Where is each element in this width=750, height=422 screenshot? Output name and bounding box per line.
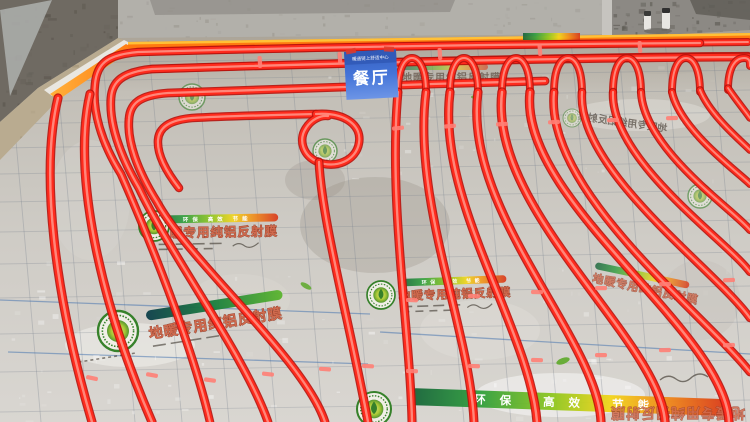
pipe-clip — [437, 48, 442, 60]
pipe-clip — [537, 44, 542, 56]
pipe-clip — [659, 348, 671, 352]
pipe-clip — [723, 278, 735, 283]
pipe-clip — [723, 343, 735, 348]
eco-logo — [367, 281, 395, 309]
pipe-clip — [319, 367, 331, 372]
tape-piece — [384, 46, 394, 52]
pipe-clip — [659, 282, 671, 286]
pipe-clip — [595, 286, 607, 290]
room-sign: 暖通链上舒适中心 餐厅 — [344, 46, 399, 100]
pipe-clip — [637, 41, 642, 53]
pipe-clip — [406, 369, 418, 374]
pipe-clip — [531, 358, 543, 362]
pipe-clip — [548, 120, 560, 125]
photo-underfloor-heating: 环保 高效 节能 地暖专用纯铝反射膜 环保 高效 节能 地暖专用纯铝反射膜 地暖… — [0, 0, 750, 422]
sign-room-name: 餐厅 — [352, 67, 390, 89]
pipe-clip — [496, 122, 508, 127]
pipe-clip — [257, 56, 262, 68]
pipe-clip — [337, 52, 342, 64]
eco-logo — [563, 109, 581, 127]
pipe-clip — [468, 294, 480, 299]
printed-rainbow-edge — [523, 33, 580, 40]
scene-canvas: 环保 高效 节能 地暖专用纯铝反射膜 环保 高效 节能 地暖专用纯铝反射膜 地暖… — [0, 0, 750, 422]
pipe-clip — [666, 116, 678, 120]
pipe-clip — [607, 118, 619, 123]
pipe-clip — [406, 298, 418, 303]
pipe-clip — [531, 290, 543, 294]
pipe-clip — [362, 364, 374, 369]
pipe-clip — [595, 353, 607, 357]
pipe-clip — [468, 364, 480, 369]
